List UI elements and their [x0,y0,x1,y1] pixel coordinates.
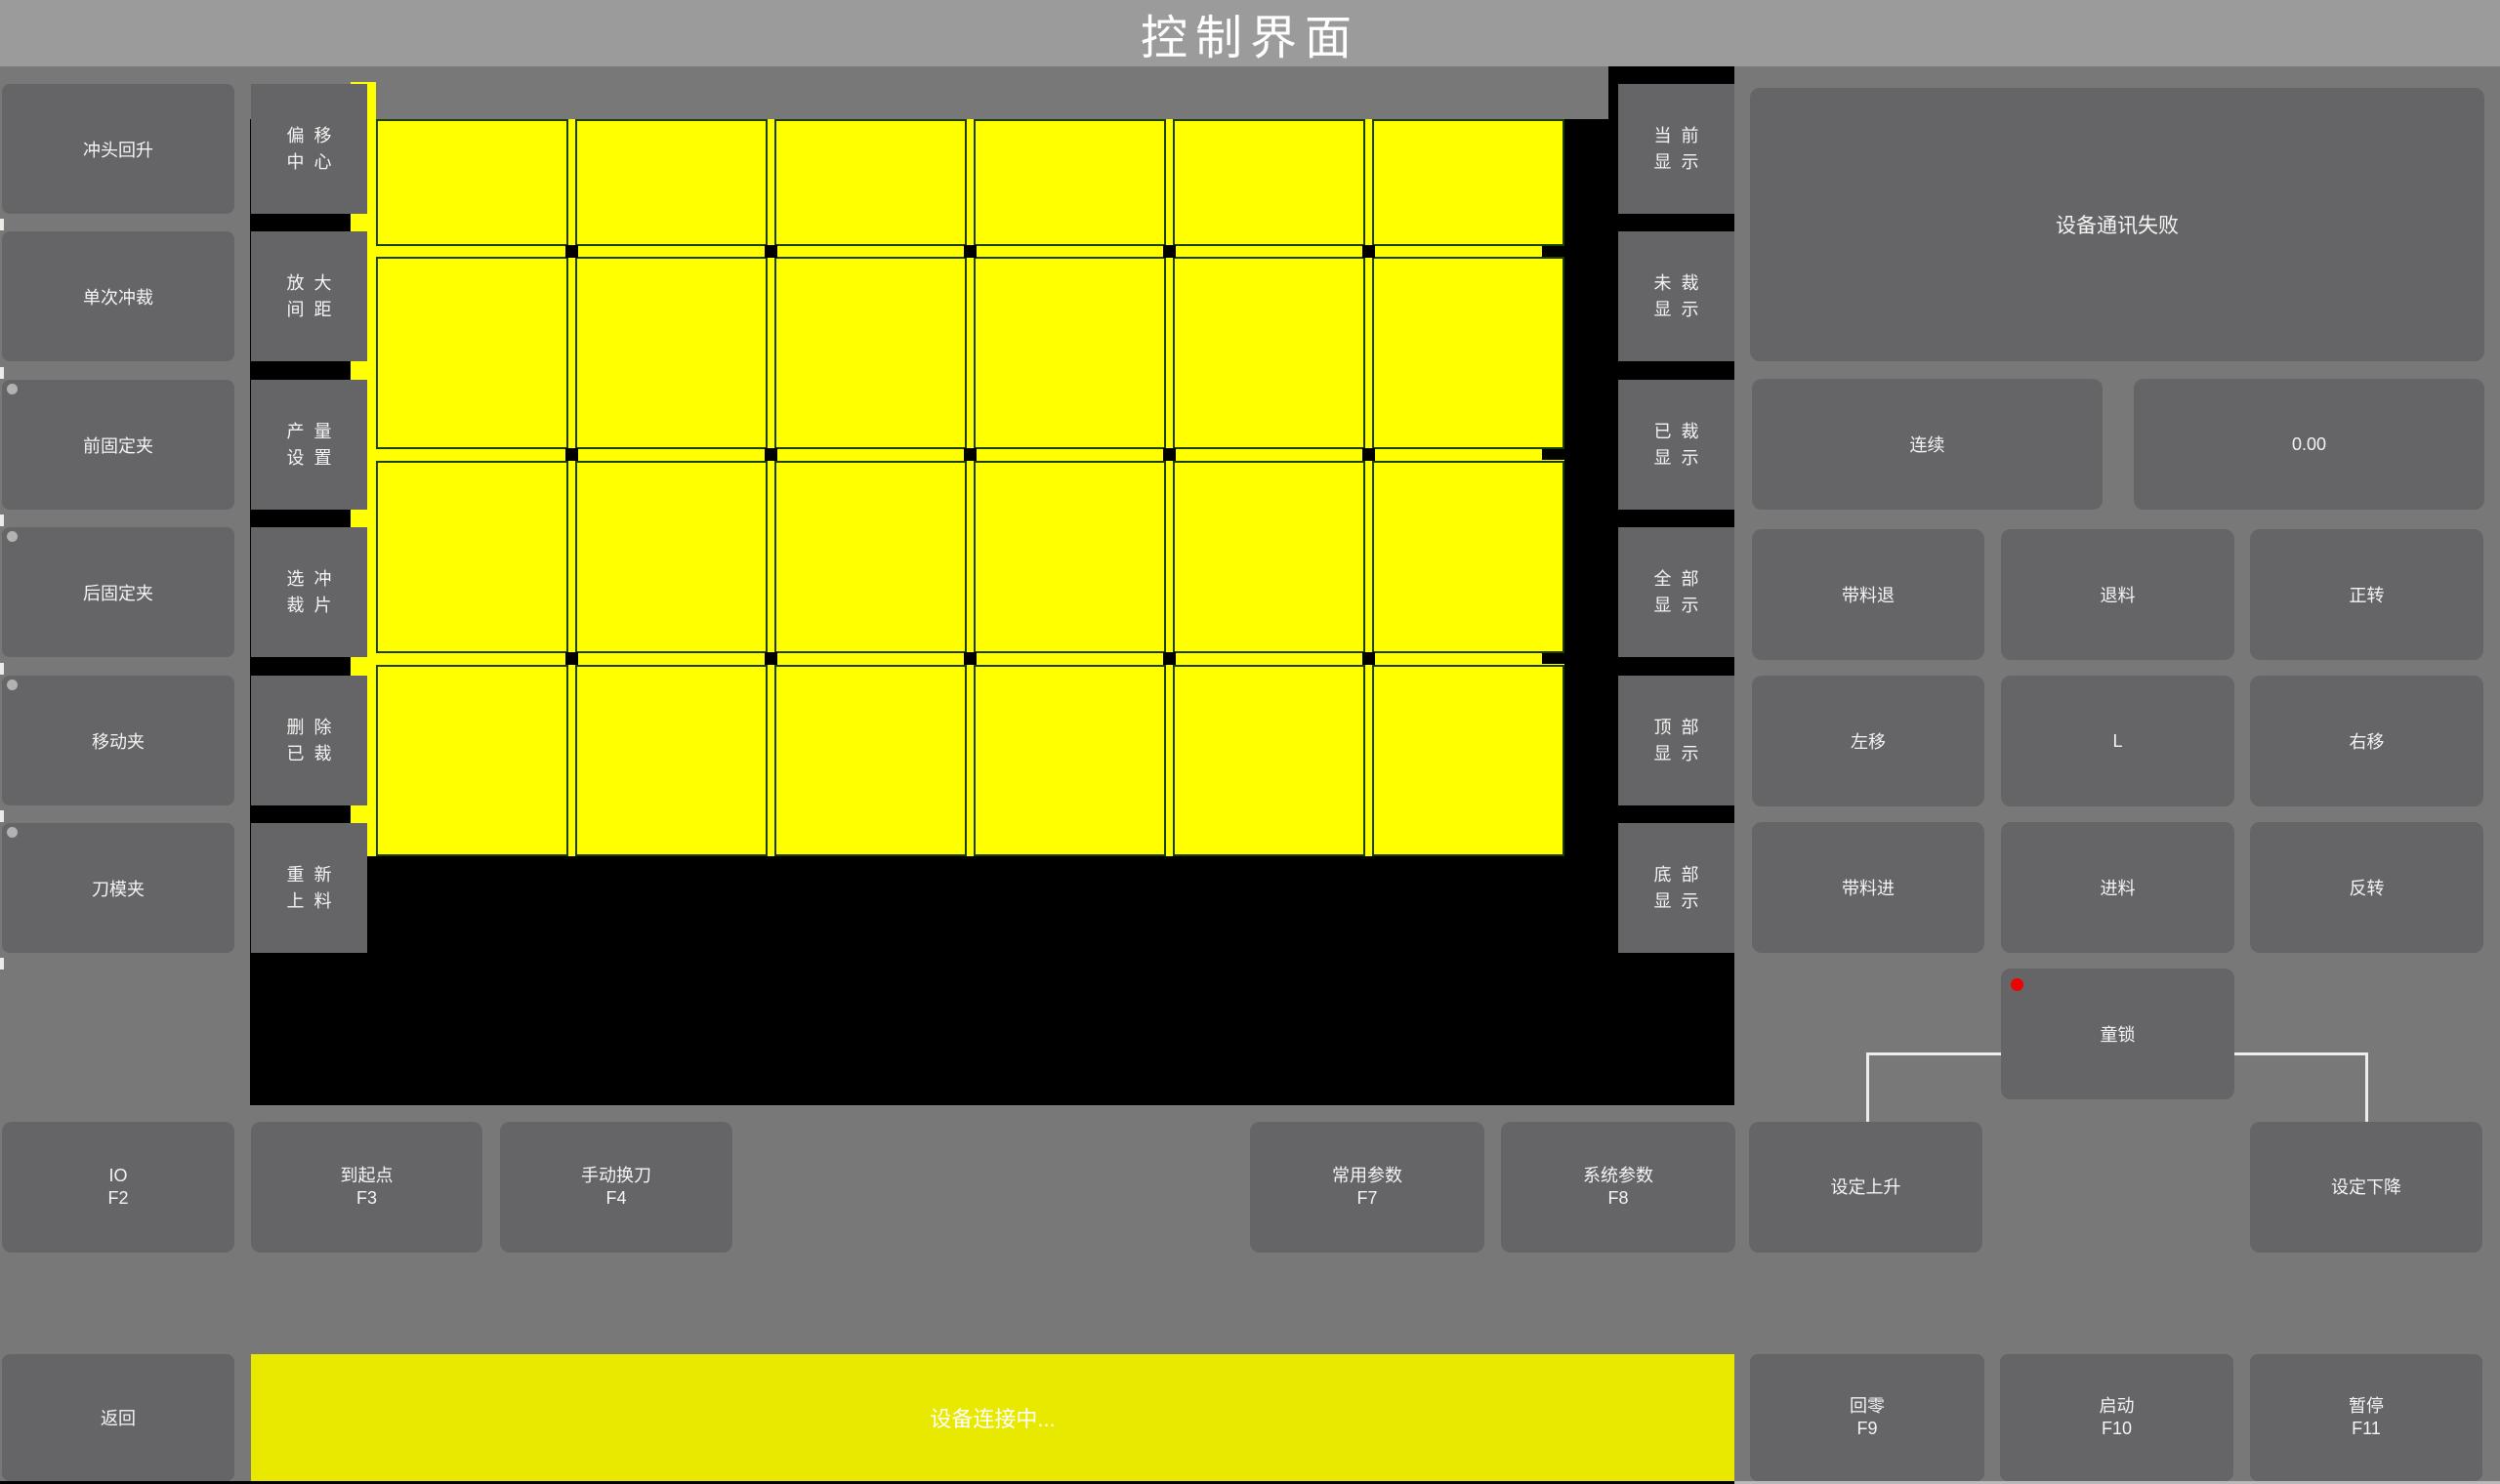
lock-wire-left-drop [1866,1052,1869,1123]
cut-notch [765,448,777,461]
button-l[interactable]: L [2001,676,2234,806]
button-label: 前固定夹 [83,433,153,458]
button-label: 放大间距 [277,270,342,323]
button-label: 童锁 [2101,1021,2136,1047]
edge-tick [0,810,4,822]
button-label: 退料 [2101,582,2136,607]
button-to-origin-f3[interactable]: 到起点F3 [251,1122,482,1253]
cut-notch [1362,245,1375,258]
button-label: 系统参数 [1583,1165,1653,1187]
grid-piece[interactable] [376,119,568,246]
grid-piece[interactable] [974,461,1166,653]
cut-notch [565,448,578,461]
button-set-descend[interactable]: 设定下降 [2250,1122,2482,1253]
cut-notch [964,652,977,665]
indicator-dot [7,827,18,838]
button-move-left[interactable]: 左移 [1752,676,1984,806]
button-label: 右移 [2350,728,2385,754]
button-label: 带料退 [1842,582,1895,607]
edge-tick [0,515,4,526]
lock-alarm-dot [2011,978,2023,991]
button-reload-material[interactable]: 重新上料 [251,823,367,953]
page-title: 控制界面 [1141,0,1359,67]
grid-piece[interactable] [376,257,568,449]
connection-status-text: 设备连接中... [930,1402,1055,1433]
cut-notch [1362,448,1375,461]
cut-notch [765,652,777,665]
status-panel: 设备通讯失败 [1750,88,2484,361]
button-pause-f11[interactable]: 暂停F11 [2250,1354,2482,1481]
button-label: 常用参数 [1332,1165,1402,1187]
grid-piece[interactable] [575,665,768,856]
button-strip-feed[interactable]: 带料进 [1752,822,1984,953]
grid-piece[interactable] [974,665,1166,856]
material-top-margin [250,66,1608,119]
button-feed-material[interactable]: 进料 [2001,822,2234,953]
button-manual-tool-change-f4[interactable]: 手动换刀F4 [500,1122,732,1253]
button-label: 启动 [2100,1395,2135,1418]
button-enlarge-spacing[interactable]: 放大间距 [251,231,367,361]
fkey-label: F11 [2352,1418,2381,1440]
lock-wire-left [1866,1052,2001,1055]
button-rear-clamp[interactable]: 后固定夹 [2,527,234,657]
status-message: 设备通讯失败 [2056,210,2179,239]
grid-piece[interactable] [974,257,1166,449]
button-show-top[interactable]: 顶部显示 [1618,676,1734,805]
button-label: 正转 [2350,582,2385,607]
button-label: 进料 [2101,875,2136,900]
button-label: 未裁显示 [1645,270,1709,323]
button-home-f9[interactable]: 回零F9 [1750,1354,1984,1481]
lock-wire-right-drop [2365,1052,2368,1123]
cut-notch [964,245,977,258]
button-label: L [2112,731,2122,752]
button-label: 单次冲裁 [83,284,153,309]
fkey-label: F2 [107,1187,128,1210]
button-eject-material[interactable]: 退料 [2001,529,2234,660]
button-forward-rotate[interactable]: 正转 [2250,529,2483,660]
cut-notch [1362,652,1375,665]
cut-notch [1163,448,1176,461]
grid-piece[interactable] [774,461,967,653]
indicator-dot [7,384,18,394]
grid-piece[interactable] [575,257,768,449]
button-label: 选冲裁片 [277,566,342,619]
button-label: 回零 [1850,1395,1885,1418]
button-label: 返回 [101,1405,136,1430]
cut-notch [964,448,977,461]
button-reverse-rotate[interactable]: 反转 [2250,822,2483,953]
value-text: 0.00 [2292,434,2326,455]
button-label: 移动夹 [92,728,145,754]
cut-notch [1163,245,1176,258]
grid-piece[interactable] [974,119,1166,246]
button-label: 刀模夹 [92,876,145,901]
button-offset-center[interactable]: 偏移中心 [251,84,367,214]
grid-piece[interactable] [1173,119,1365,246]
grid-piece[interactable] [774,665,967,856]
button-delete-cut[interactable]: 删除已裁 [251,676,367,805]
button-label: 产量设置 [277,419,342,472]
button-label: 重新上料 [277,862,342,915]
grid-piece[interactable] [376,665,568,856]
button-show-bottom[interactable]: 底部显示 [1618,823,1734,953]
edge-tick [0,663,4,675]
button-show-all[interactable]: 全部显示 [1618,527,1734,657]
grid-piece[interactable] [1372,665,1564,856]
control-screen: 控制界面 冲头回升 单次冲裁 前固定夹 后固定夹 移动夹 刀模夹 偏移中心 放大… [0,0,2500,1484]
button-label: 连续 [1910,432,1945,457]
button-child-lock[interactable]: 童锁 [2001,969,2234,1099]
value-display: 0.00 [2134,379,2484,510]
edge-tick [0,219,4,230]
fkey-label: F10 [2102,1418,2132,1440]
edge-tick [0,958,4,969]
indicator-dot [7,680,18,690]
button-set-rise[interactable]: 设定上升 [1749,1122,1982,1253]
button-label: IO [108,1165,127,1187]
button-label: 暂停 [2349,1395,2384,1418]
title-bar: 控制界面 [0,0,2500,66]
button-label: 到起点 [341,1165,394,1187]
button-show-cut[interactable]: 已裁显示 [1618,380,1734,510]
back-button[interactable]: 返回 [2,1354,234,1481]
grid-piece[interactable] [575,461,768,653]
button-label: 设定上升 [1831,1176,1901,1199]
button-label: 底部显示 [1645,862,1709,915]
button-output-settings[interactable]: 产量设置 [251,380,367,510]
button-label: 左移 [1851,728,1886,754]
grid-piece[interactable] [1173,461,1365,653]
button-show-uncut[interactable]: 未裁显示 [1618,231,1734,361]
grid-piece[interactable] [1372,461,1564,653]
fkey-label: F9 [1856,1418,1877,1440]
fkey-label: F8 [1607,1187,1628,1210]
fkey-label: F7 [1356,1187,1377,1210]
button-move-right[interactable]: 右移 [2250,676,2483,806]
grid-piece[interactable] [774,257,967,449]
button-label: 后固定夹 [83,580,153,605]
button-moving-clamp[interactable]: 移动夹 [2,676,234,805]
button-front-clamp[interactable]: 前固定夹 [2,380,234,510]
button-label: 当前显示 [1645,123,1709,176]
button-common-params-f7[interactable]: 常用参数F7 [1250,1122,1484,1253]
cut-notch-edge [1542,449,1564,460]
cut-notch-edge [1542,653,1564,664]
material-grid [376,119,1564,856]
button-single-punch[interactable]: 单次冲裁 [2,231,234,361]
button-io-f2[interactable]: IOF2 [2,1122,234,1253]
button-label: 手动换刀 [581,1165,651,1187]
button-label: 全部显示 [1645,566,1709,619]
grid-piece[interactable] [575,119,768,246]
grid-piece[interactable] [1173,665,1365,856]
fkey-label: F3 [356,1187,377,1210]
grid-piece[interactable] [1372,119,1564,246]
cut-notch [565,652,578,665]
button-label: 冲头回升 [83,137,153,162]
button-show-current[interactable]: 当前显示 [1618,84,1734,214]
fkey-label: F4 [605,1187,626,1210]
button-label: 已裁显示 [1645,419,1709,472]
button-label: 偏移中心 [277,123,342,176]
cut-notch [765,245,777,258]
button-strip-back[interactable]: 带料退 [1752,529,1984,660]
edge-tick [0,367,4,379]
button-continuous-mode[interactable]: 连续 [1752,379,2103,510]
button-select-pieces[interactable]: 选冲裁片 [251,527,367,657]
button-label: 删除已裁 [277,715,342,767]
cut-notch [565,245,578,258]
button-label: 带料进 [1842,875,1895,900]
button-die-clamp[interactable]: 刀模夹 [2,823,234,953]
lock-wire-right [2234,1052,2368,1055]
button-label: 反转 [2350,875,2385,900]
button-label: 设定下降 [2331,1176,2401,1199]
grid-piece[interactable] [774,119,967,246]
indicator-dot [7,531,18,542]
button-system-params-f8[interactable]: 系统参数F8 [1501,1122,1735,1253]
grid-piece[interactable] [1173,257,1365,449]
cut-notch-edge [1542,246,1564,257]
connection-status-bar: 设备连接中... [251,1354,1734,1481]
grid-piece[interactable] [1372,257,1564,449]
cut-notch [1163,652,1176,665]
grid-piece[interactable] [376,461,568,653]
button-label: 顶部显示 [1645,715,1709,767]
button-punch-raise[interactable]: 冲头回升 [2,84,234,214]
button-start-f10[interactable]: 启动F10 [2000,1354,2233,1481]
